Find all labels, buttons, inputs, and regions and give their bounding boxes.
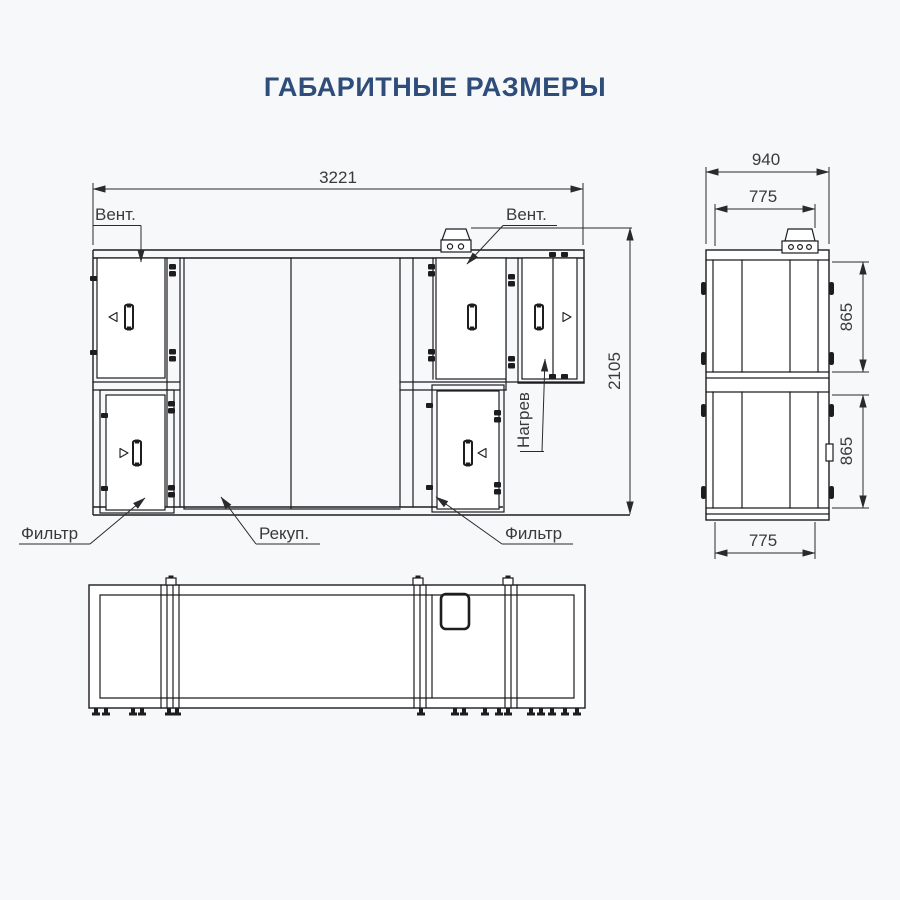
side-view: 940 775 865 865 775 xyxy=(701,150,869,559)
side-latch xyxy=(826,444,833,461)
side-upper-height-value: 865 xyxy=(837,303,856,331)
side-bottom-width-value: 775 xyxy=(749,531,777,550)
recuperator-panel xyxy=(184,258,400,509)
dimension-side-bottom-width: 775 xyxy=(715,522,815,559)
front-view: 3221 2105 Вент. Вент. Нагрев Фильтр xyxy=(19,168,632,544)
side-outline xyxy=(706,250,829,520)
svg-text:Вент.: Вент. xyxy=(506,205,547,224)
door-handle-icon xyxy=(464,440,472,467)
front-width-value: 3221 xyxy=(319,168,357,187)
svg-text:Рекуп.: Рекуп. xyxy=(259,524,309,543)
side-top-width-value: 775 xyxy=(749,187,777,206)
control-panel-side xyxy=(782,229,818,253)
door-handle-icon xyxy=(133,440,141,467)
dimensions-drawing: 3221 2105 Вент. Вент. Нагрев Фильтр xyxy=(0,0,900,900)
label-fan-left: Вент. xyxy=(93,205,141,262)
door-handle-icon xyxy=(468,304,476,331)
label-fan-right: Вент. xyxy=(467,205,557,264)
door-handle-icon xyxy=(125,304,133,331)
bottom-view xyxy=(89,576,585,716)
control-panel xyxy=(441,229,471,252)
svg-text:Вент.: Вент. xyxy=(95,205,136,224)
door-handle-icon xyxy=(535,304,543,331)
front-height-value: 2105 xyxy=(605,352,624,390)
side-overall-width-value: 940 xyxy=(752,150,780,169)
dimension-side-upper-height: 865 xyxy=(832,262,869,372)
bottom-tabs xyxy=(166,576,513,586)
label-recuperator: Рекуп. xyxy=(221,497,320,544)
bottom-feet xyxy=(92,708,581,716)
page: { "title": "ГАБАРИТНЫЕ РАЗМЕРЫ", "colors… xyxy=(0,0,900,900)
svg-text:Фильтр: Фильтр xyxy=(505,524,562,543)
svg-text:Нагрев: Нагрев xyxy=(514,392,533,448)
side-lower-height-value: 865 xyxy=(837,437,856,465)
dimension-side-lower-height: 865 xyxy=(832,395,869,508)
svg-text:Фильтр: Фильтр xyxy=(21,524,78,543)
